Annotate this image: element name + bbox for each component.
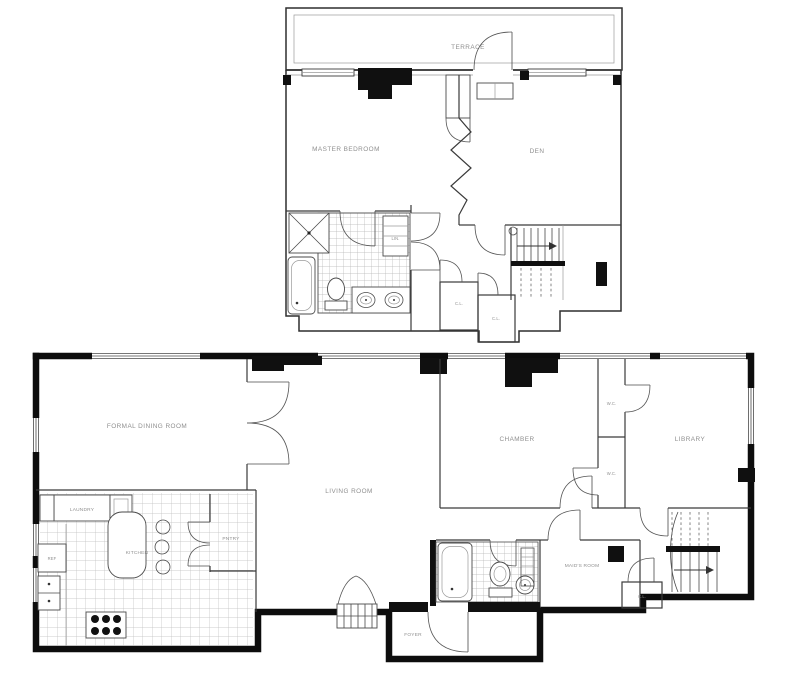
french-door [337,576,377,628]
lower-floor-plan: FORMAL DINING ROOM LIVING ROOM [32,352,755,659]
staircase-upper [509,225,565,300]
double-oven [38,576,60,610]
wall-poche [738,468,755,482]
refrigerator-label: REF [48,556,57,561]
hall-double-door [411,213,440,270]
range-burners [86,612,126,638]
bathtub [438,543,472,601]
shower [289,213,329,253]
stair-direction-arrow [706,566,714,574]
bathtub [288,257,315,314]
wall-poche [613,75,621,85]
toilet [489,562,512,597]
floor-plan-document: TERRACE MASTER BEDROOM DEN [0,0,800,679]
master-bedroom-label: MASTER BEDROOM [312,146,380,153]
closet-cl-b: C.L. [478,273,515,342]
wall-poche [358,68,412,99]
wc-b-label: W.C. [607,471,616,476]
living-room-label: LIVING ROOM [325,488,373,495]
window [747,388,755,444]
maids-room-door [548,510,580,540]
laundry-label: LAUNDRY [70,507,95,513]
den-label: DEN [530,148,545,155]
kitchen: PNTRY LAUNDRY KITCHEN REF [36,490,256,646]
lower-bathroom [430,540,540,606]
foyer: FOYER [389,602,540,652]
den-door [475,225,505,255]
terrace: TERRACE [286,8,622,70]
upper-bathroom: LIN. [286,211,411,314]
wall-poche [505,358,558,387]
staircase-lower [666,512,720,592]
dining-double-door [247,359,289,490]
vanity-sinks [352,287,410,313]
wc-a-label: W.C. [607,401,616,406]
entry-door [428,612,468,652]
wc-closets: W.C. W.C. [573,359,650,508]
chamber-label: CHAMBER [499,436,534,443]
terrace-door [473,32,513,77]
floor-plan-canvas: TERRACE MASTER BEDROOM DEN [0,0,800,679]
closet-b-label: C.L. [492,316,500,321]
linen-label: LIN. [391,236,399,241]
library-label: LIBRARY [675,436,706,443]
pantry-label: PNTRY [222,536,240,542]
wall-poche [520,71,529,80]
den-dresser [477,83,513,99]
wall-poche [596,262,607,286]
closet-a-label: C.L. [455,301,463,306]
terrace-label: TERRACE [451,44,485,51]
foyer-label: FOYER [404,632,422,638]
window [92,352,746,360]
closet-cl-a: C.L. [440,260,478,330]
wall-poche [608,546,624,562]
upper-floor-plan: TERRACE MASTER BEDROOM DEN [283,8,622,342]
dining-room-label: FORMAL DINING ROOM [107,423,187,430]
library-door [640,508,668,536]
linen-closet: LIN. [383,216,408,256]
stair-direction-arrow [549,242,557,250]
upper-closet [446,75,470,142]
round-sink [516,576,534,594]
chamber-door [560,476,592,508]
maids-room-label: MAID'S ROOM [565,563,600,569]
wall-poche [420,358,447,374]
refrigerator: REF [38,544,66,572]
wall-poche [283,75,291,85]
stair-closet-label: C.L. [638,594,646,599]
kitchen-label: KITCHEN [126,550,149,556]
wall-poche [252,356,322,371]
